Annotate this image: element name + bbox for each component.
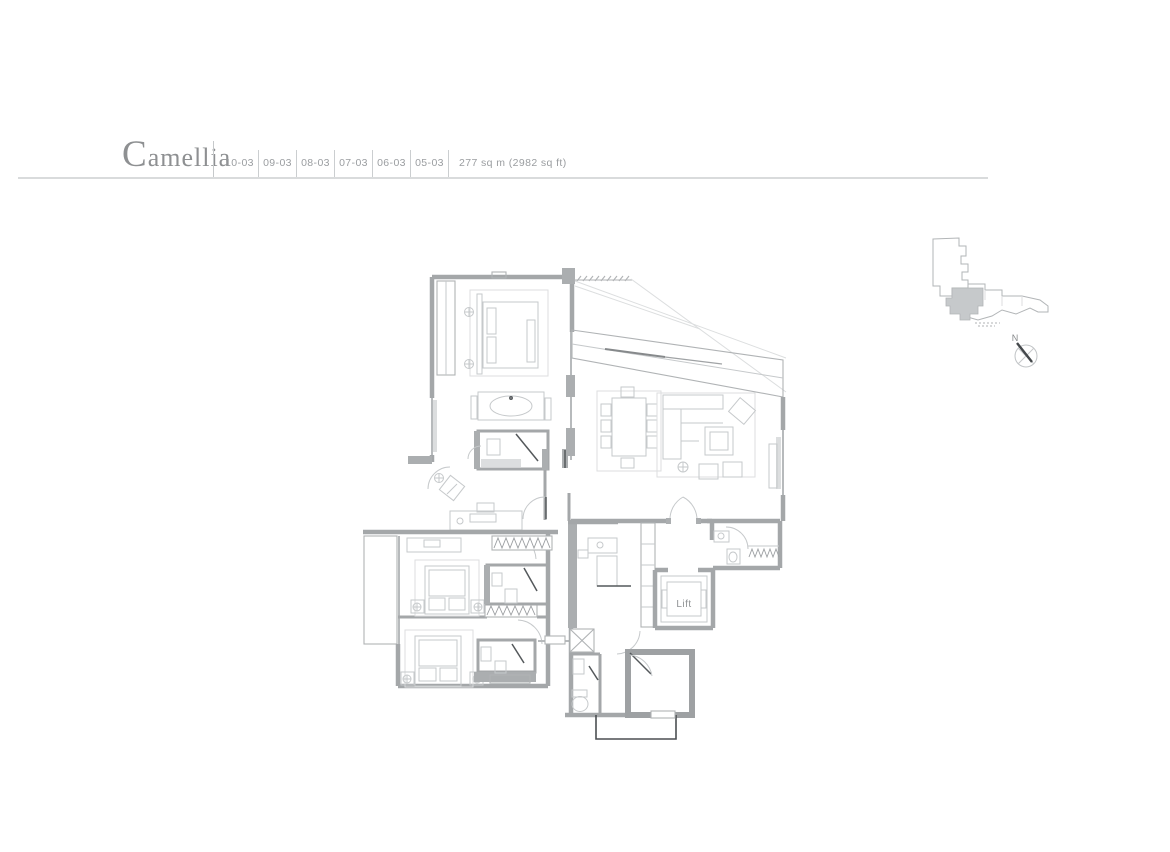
service-core: Lift <box>565 520 780 739</box>
master-bathroom <box>468 431 548 469</box>
utility-wc <box>570 629 600 715</box>
balcony-strip <box>364 536 397 644</box>
lift-label: Lift <box>676 599 691 610</box>
master-bed <box>465 290 549 376</box>
floor-plan-page: Camellia 10-03 09-03 08-03 07-03 06-03 0… <box>0 0 1170 852</box>
bathroom-2 <box>484 565 548 604</box>
bathroom-3 <box>474 640 536 683</box>
dining-table <box>597 387 661 471</box>
bathtub <box>471 392 551 420</box>
store-room <box>628 652 692 715</box>
bedroom-wing <box>363 532 571 687</box>
north-label: N <box>1012 333 1019 343</box>
key-plan: N <box>933 238 1048 367</box>
sofa-set <box>657 393 777 488</box>
powder-room <box>707 521 780 568</box>
master-suite <box>408 268 575 469</box>
louvre-band <box>572 330 783 397</box>
lift: Lift <box>655 570 713 628</box>
north-arrow-icon: N <box>1012 333 1037 367</box>
living-dining <box>569 276 786 524</box>
floor-plan: Lift <box>0 0 1170 852</box>
kitchen <box>568 522 655 628</box>
